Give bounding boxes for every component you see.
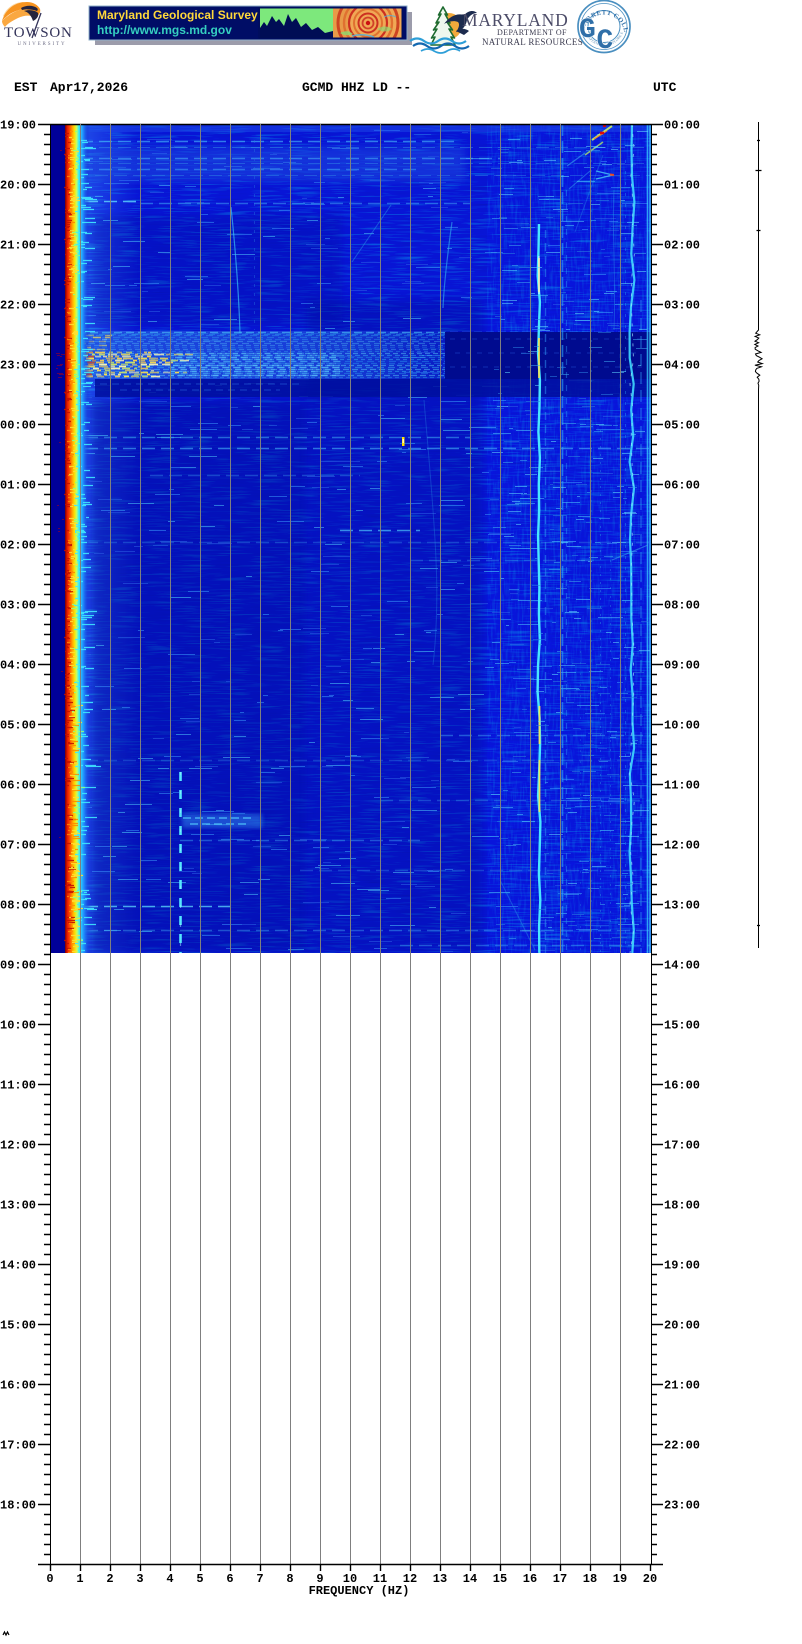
svg-text:20:00: 20:00: [664, 1319, 700, 1333]
svg-text:21:00: 21:00: [664, 1379, 700, 1393]
svg-text:DEPARTMENT OF: DEPARTMENT OF: [497, 28, 567, 37]
svg-text:05:00: 05:00: [664, 419, 700, 433]
svg-text:3: 3: [136, 1572, 143, 1586]
svg-text:G: G: [579, 15, 596, 46]
svg-text:07:00: 07:00: [0, 839, 36, 853]
svg-text:14:00: 14:00: [664, 959, 700, 973]
svg-text:20: 20: [643, 1572, 657, 1586]
svg-text:04:00: 04:00: [0, 659, 36, 673]
svg-text:16:00: 16:00: [664, 1079, 700, 1093]
svg-text:Apr17,2026: Apr17,2026: [50, 80, 128, 95]
svg-text:21:00: 21:00: [0, 239, 36, 253]
svg-text:07:00: 07:00: [664, 539, 700, 553]
svg-text:UNIVERSITY: UNIVERSITY: [18, 42, 67, 47]
svg-text:18:00: 18:00: [0, 1499, 36, 1513]
svg-text:5: 5: [196, 1572, 203, 1586]
svg-text:17: 17: [553, 1572, 567, 1586]
svg-text:10:00: 10:00: [664, 719, 700, 733]
svg-text:05:00: 05:00: [0, 719, 36, 733]
svg-text:4: 4: [166, 1572, 173, 1586]
svg-text:14: 14: [463, 1572, 477, 1586]
svg-text:09:00: 09:00: [0, 959, 36, 973]
svg-text:16: 16: [523, 1572, 537, 1586]
svg-text:10:00: 10:00: [0, 1019, 36, 1033]
svg-text:17:00: 17:00: [0, 1439, 36, 1453]
svg-text:C: C: [597, 26, 614, 57]
svg-text:FREQUENCY (HZ): FREQUENCY (HZ): [309, 1584, 410, 1598]
svg-text:TOWSON: TOWSON: [4, 25, 73, 41]
svg-text:0: 0: [46, 1572, 53, 1586]
svg-text:22:00: 22:00: [664, 1439, 700, 1453]
svg-text:11:00: 11:00: [664, 779, 700, 793]
svg-text:16:00: 16:00: [0, 1379, 36, 1393]
svg-text:01:00: 01:00: [0, 479, 36, 493]
svg-text:01:00: 01:00: [664, 179, 700, 193]
svg-text:6: 6: [226, 1572, 233, 1586]
svg-text:20:00: 20:00: [0, 179, 36, 193]
svg-text:18:00: 18:00: [664, 1199, 700, 1213]
svg-text:03:00: 03:00: [664, 299, 700, 313]
svg-text:08:00: 08:00: [664, 599, 700, 613]
svg-text:04:00: 04:00: [664, 359, 700, 373]
svg-text:15:00: 15:00: [664, 1019, 700, 1033]
svg-text:2: 2: [106, 1572, 113, 1586]
svg-text:11:00: 11:00: [0, 1079, 36, 1093]
svg-text:12:00: 12:00: [664, 839, 700, 853]
svg-text:22:00: 22:00: [0, 299, 36, 313]
svg-text:Maryland Geological Survey: Maryland Geological Survey: [97, 8, 258, 22]
svg-text:15: 15: [493, 1572, 507, 1586]
svg-text:MARYLAND: MARYLAND: [462, 10, 569, 30]
svg-text:EST: EST: [14, 80, 38, 95]
svg-text:1: 1: [76, 1572, 83, 1586]
svg-text:NATURAL RESOURCES: NATURAL RESOURCES: [482, 37, 583, 47]
svg-text:06:00: 06:00: [0, 779, 36, 793]
svg-text:02:00: 02:00: [0, 539, 36, 553]
svg-text:00:00: 00:00: [664, 119, 700, 133]
svg-text:19: 19: [613, 1572, 627, 1586]
svg-text:18: 18: [583, 1572, 597, 1586]
svg-text:13:00: 13:00: [664, 899, 700, 913]
svg-text:14:00: 14:00: [0, 1259, 36, 1273]
svg-text:13:00: 13:00: [0, 1199, 36, 1213]
svg-text:08:00: 08:00: [0, 899, 36, 913]
svg-text:13: 13: [433, 1572, 447, 1586]
svg-text:12:00: 12:00: [0, 1139, 36, 1153]
svg-text:15:00: 15:00: [0, 1319, 36, 1333]
svg-text:09:00: 09:00: [664, 659, 700, 673]
svg-text:06:00: 06:00: [664, 479, 700, 493]
svg-text:17:00: 17:00: [664, 1139, 700, 1153]
svg-text:http://www.mgs.md.gov: http://www.mgs.md.gov: [97, 23, 232, 37]
svg-text:03:00: 03:00: [0, 599, 36, 613]
svg-text:19:00: 19:00: [664, 1259, 700, 1273]
svg-text:GCMD HHZ LD --: GCMD HHZ LD --: [302, 80, 411, 95]
svg-text:23:00: 23:00: [0, 359, 36, 373]
svg-text:23:00: 23:00: [664, 1499, 700, 1513]
svg-text:19:00: 19:00: [0, 119, 36, 133]
svg-text:00:00: 00:00: [0, 419, 36, 433]
svg-text:02:00: 02:00: [664, 239, 700, 253]
svg-text:8: 8: [286, 1572, 293, 1586]
svg-text:7: 7: [256, 1572, 263, 1586]
svg-text:UTC: UTC: [653, 80, 677, 95]
